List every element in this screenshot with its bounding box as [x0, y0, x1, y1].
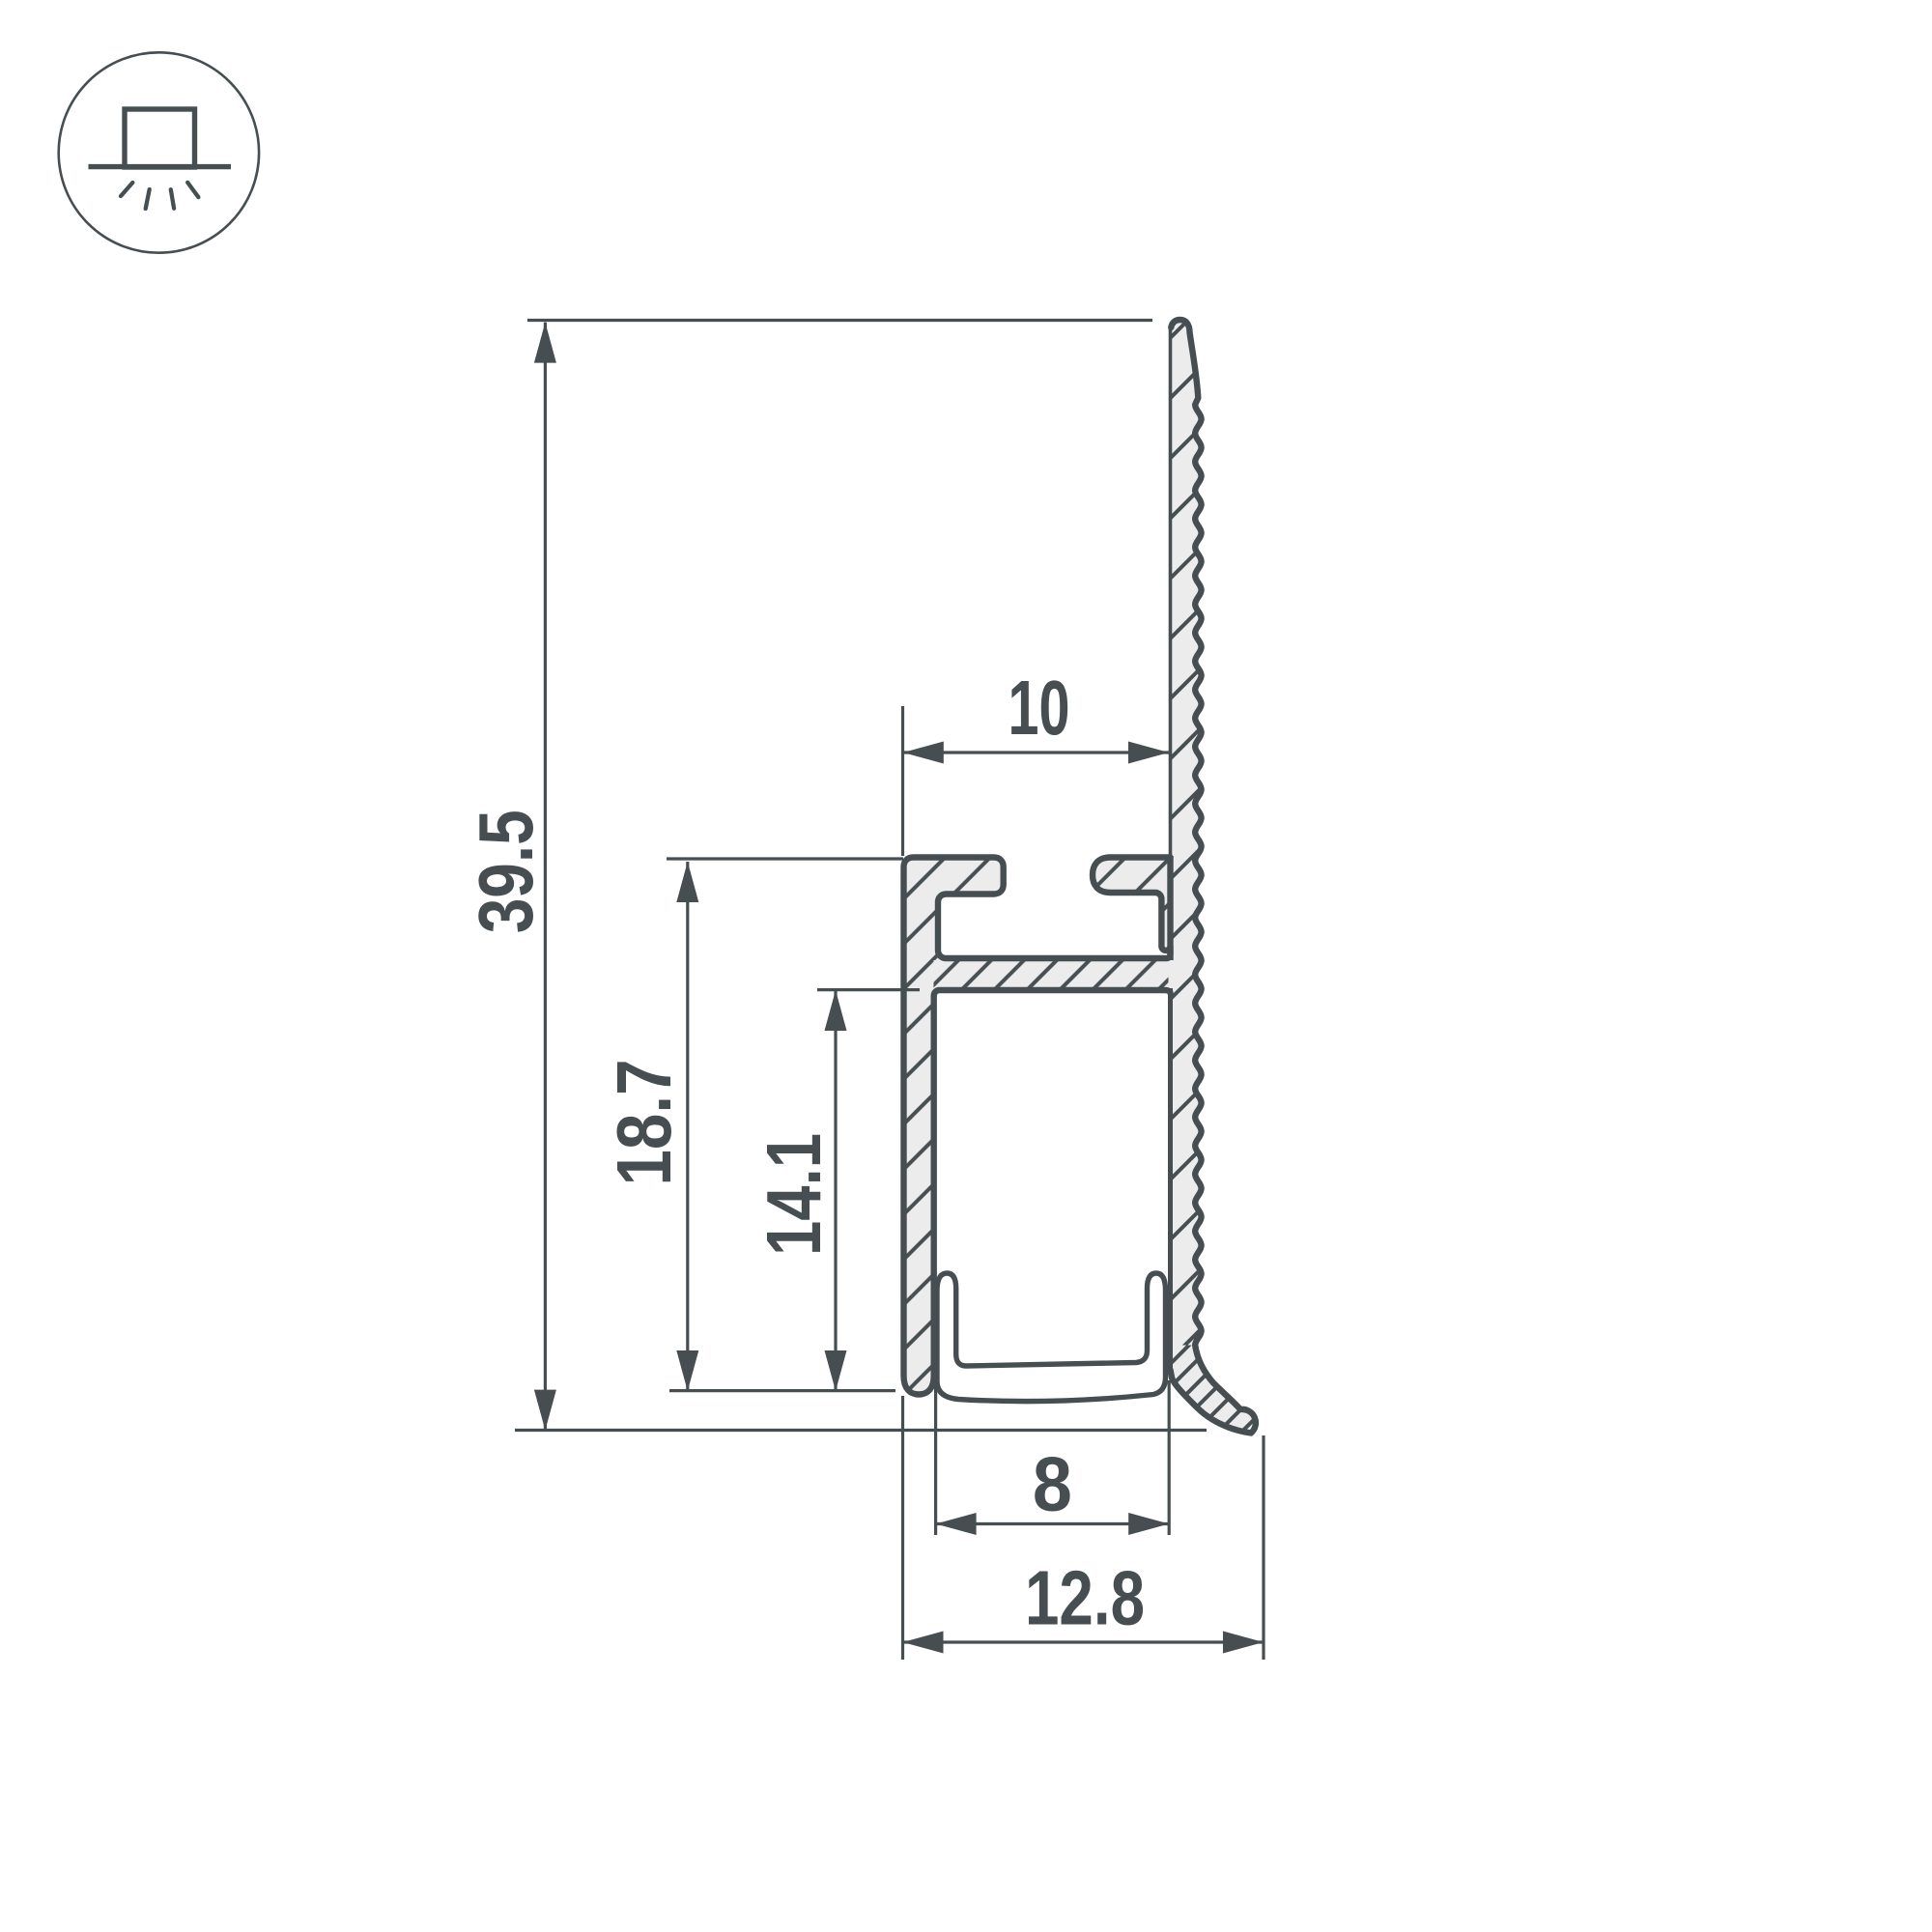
svg-text:18.7: 18.7	[601, 1060, 687, 1186]
svg-text:39.5: 39.5	[463, 810, 549, 933]
svg-text:12.8: 12.8	[1025, 1555, 1145, 1641]
svg-text:14.1: 14.1	[751, 1133, 837, 1256]
svg-text:10: 10	[1009, 665, 1070, 751]
svg-text:8: 8	[1033, 1441, 1072, 1527]
